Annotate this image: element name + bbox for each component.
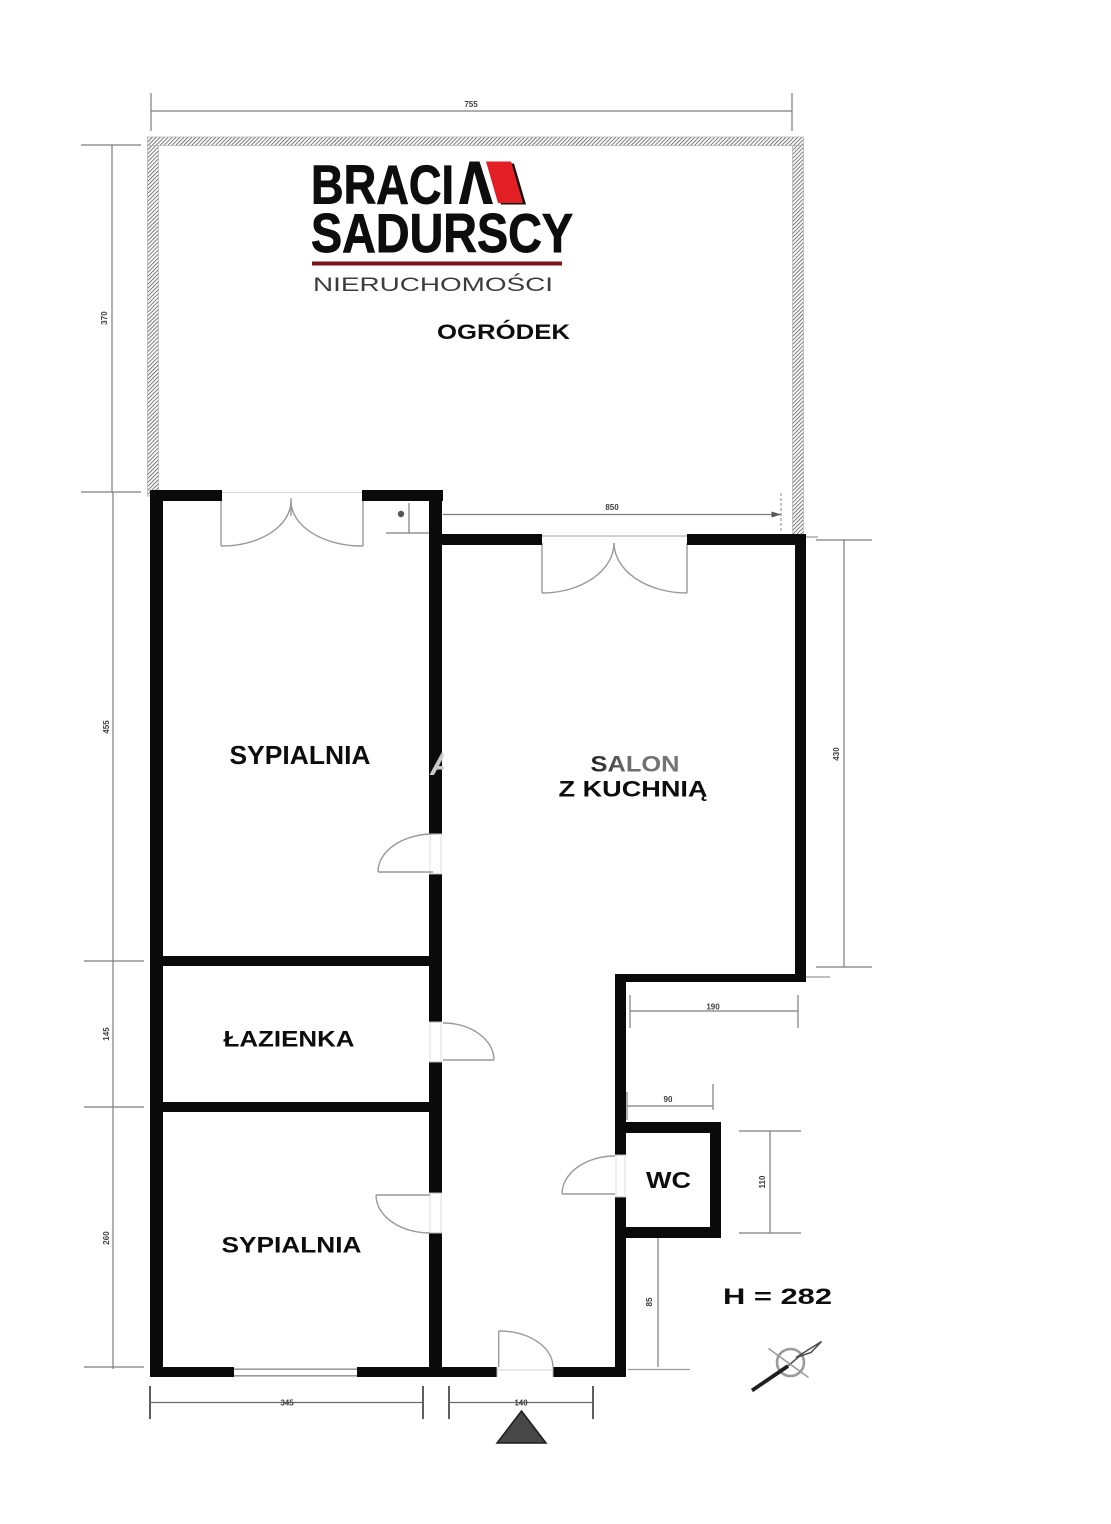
svg-text:455: 455 (102, 720, 111, 734)
svg-text:140: 140 (514, 1399, 528, 1408)
svg-text:755: 755 (464, 100, 478, 109)
svg-text:190: 190 (706, 1003, 720, 1012)
svg-text:430: 430 (832, 747, 841, 761)
svg-text:H = 282: H = 282 (723, 1284, 832, 1309)
svg-text:850: 850 (605, 503, 619, 512)
svg-text:370: 370 (100, 311, 109, 325)
svg-text:SADURSCY: SADURSCY (311, 202, 573, 264)
svg-text:260: 260 (102, 1231, 111, 1245)
svg-text:OGRÓDEK: OGRÓDEK (437, 320, 570, 344)
svg-text:SYPIALNIA: SYPIALNIA (230, 740, 371, 770)
svg-text:85: 85 (645, 1297, 654, 1306)
svg-text:345: 345 (280, 1399, 294, 1408)
svg-text:110: 110 (758, 1175, 767, 1188)
svg-text:WC: WC (646, 1167, 691, 1193)
svg-text:145: 145 (102, 1027, 111, 1041)
svg-text:ŁAZIENKA: ŁAZIENKA (224, 1027, 355, 1052)
svg-text:NIERUCHOMOŚCI: NIERUCHOMOŚCI (313, 274, 553, 296)
svg-text:90: 90 (664, 1095, 673, 1104)
svg-text:SYPIALNIA: SYPIALNIA (222, 1233, 362, 1258)
svg-text:Z KUCHNIĄ: Z KUCHNIĄ (559, 777, 708, 802)
